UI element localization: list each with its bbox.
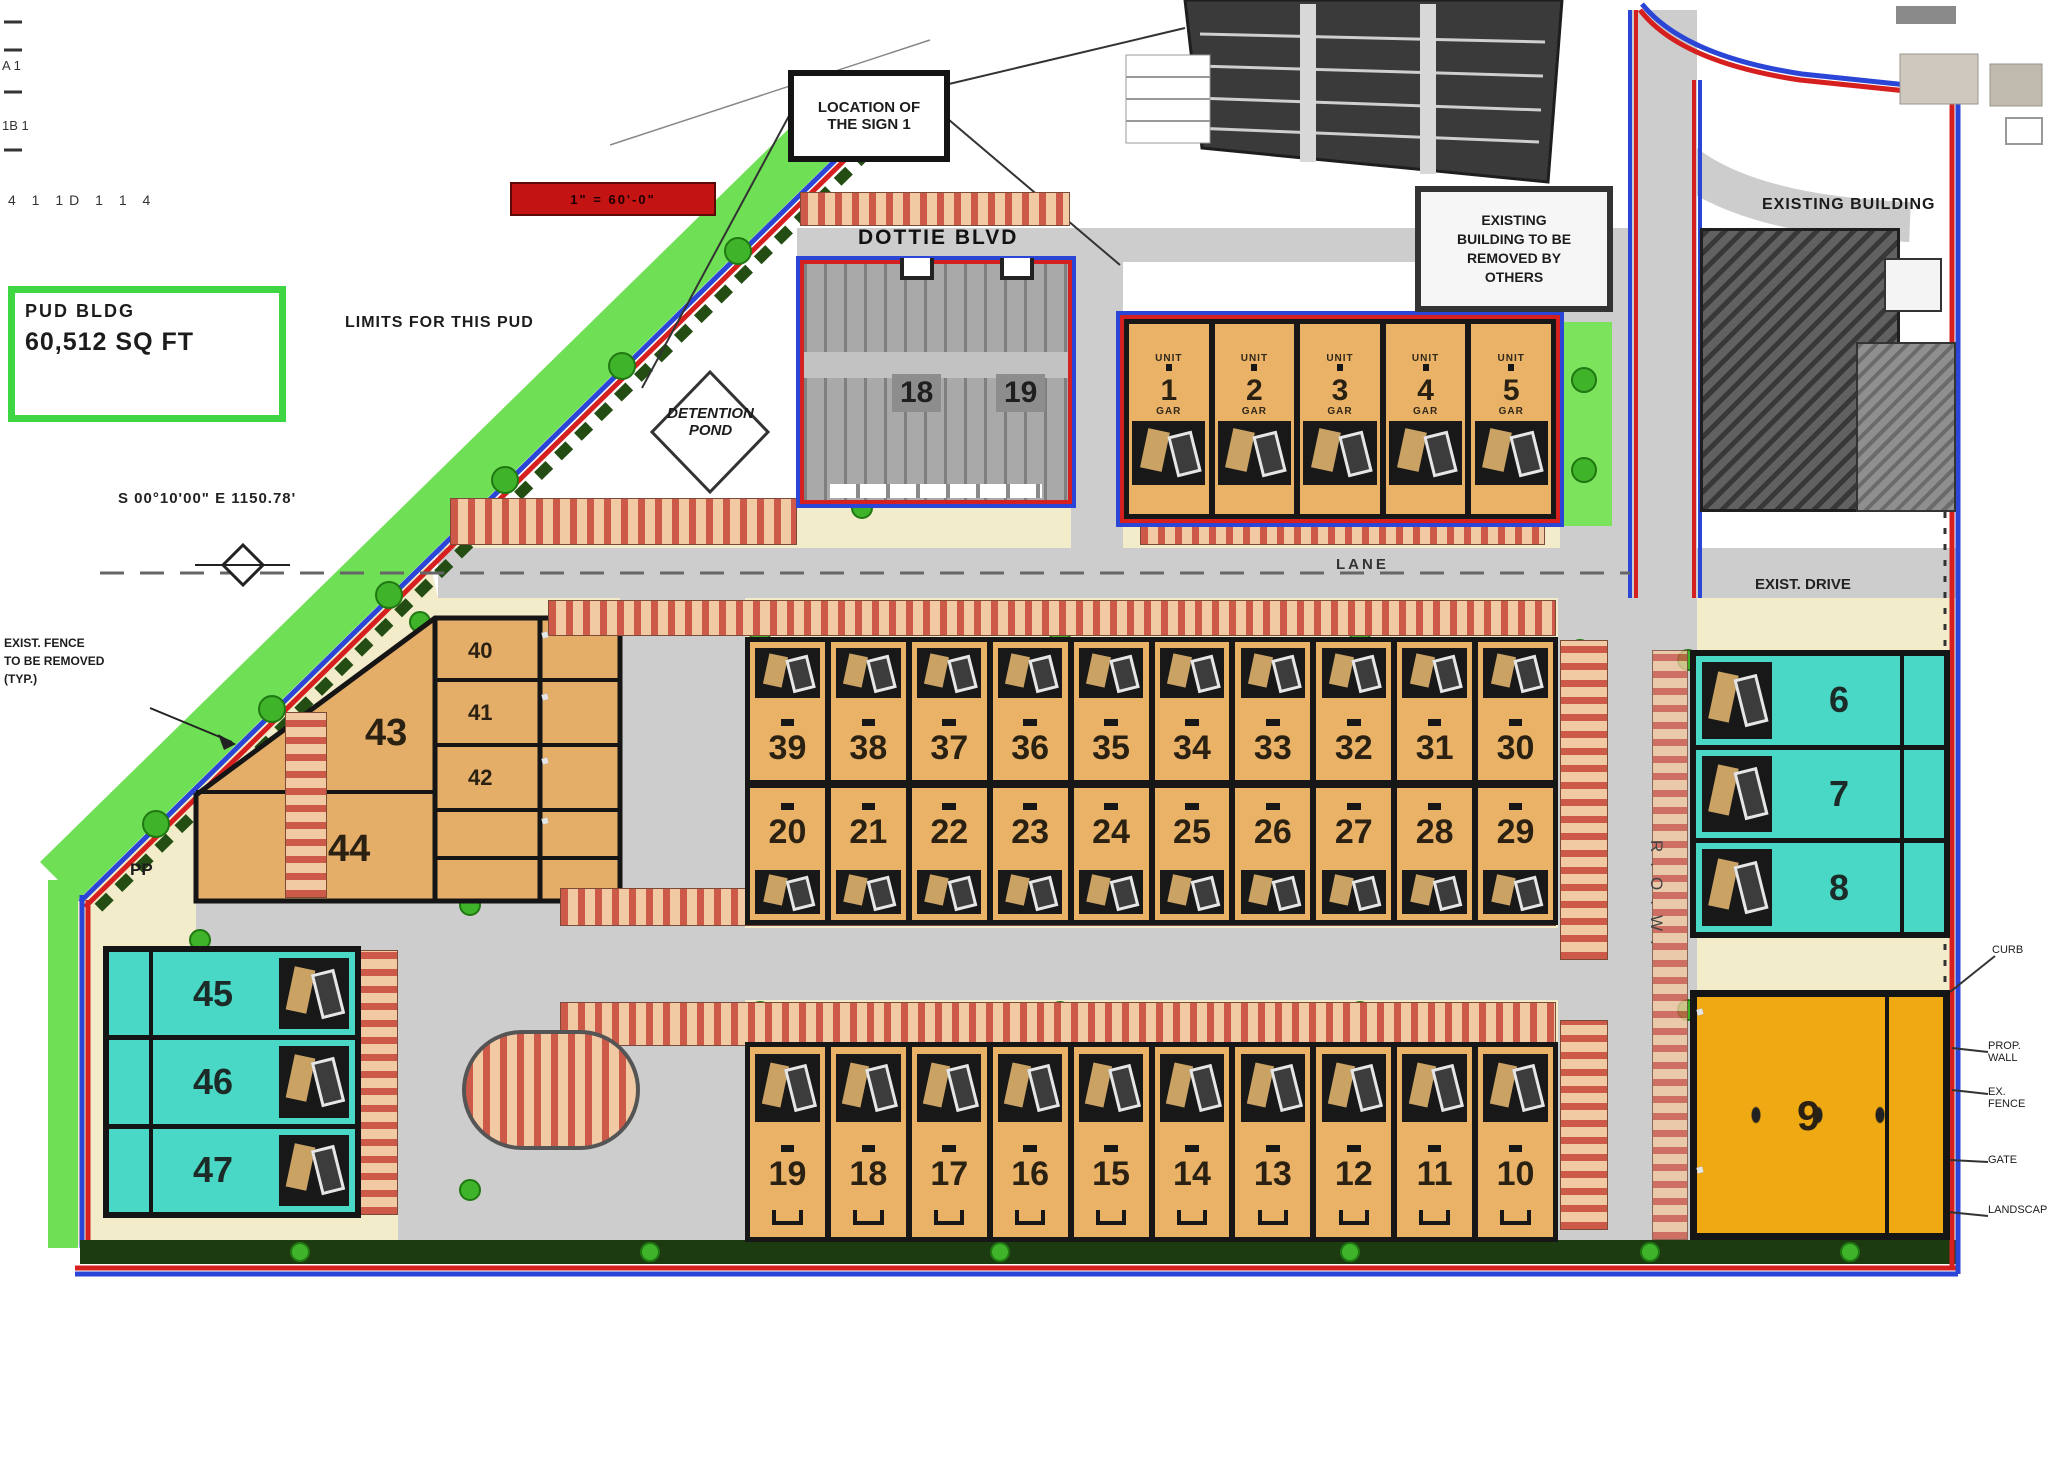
callout-curb: CURB [1992, 944, 2046, 956]
unit-cell: 26 [1235, 788, 1310, 864]
center-row-middle: 20 21 22 23 24 25 26 27 28 29 [750, 788, 1553, 864]
unit-cell: 14 [1155, 1129, 1230, 1207]
patio-cell [1316, 864, 1391, 920]
unit-cell: 33 [1235, 704, 1310, 780]
building-door-tabs [830, 484, 1041, 498]
center-row-upper: 39 38 37 36 35 34 33 32 31 30 [750, 704, 1553, 788]
scale-bar: 1" = 60'-0" [510, 182, 716, 216]
unit-number: 21 [849, 803, 887, 849]
unit-cell: 38 [831, 704, 906, 780]
unit-garage [1218, 421, 1291, 485]
unit-tag-top: UNIT [1498, 353, 1525, 364]
patio-glyph [836, 648, 900, 698]
unit-garage [1702, 756, 1772, 833]
unit-number: 23 [1011, 803, 1049, 849]
unit-garage [279, 1135, 349, 1206]
garage-cell [993, 1047, 1068, 1129]
patio-cell [1155, 864, 1230, 920]
unit-number: 24 [1092, 803, 1130, 849]
unit-garage [1702, 662, 1772, 739]
unit-number: 47 [153, 1129, 273, 1212]
patio-glyph [1322, 648, 1386, 698]
unit-tag-top: UNIT [1326, 353, 1353, 364]
parking-strip-east-upper [1560, 640, 1608, 960]
entry-stub [1900, 750, 1944, 839]
unit-number-43: 43 [365, 712, 407, 755]
garage-glyph [998, 1054, 1062, 1121]
callout-gate: GATE [1988, 1154, 2046, 1166]
parking-strip-left-vertical [360, 950, 398, 1215]
unit-cell: 32 [1316, 704, 1391, 780]
unit-number-40: 40 [468, 638, 492, 664]
street-label-lane: LANE [1336, 556, 1389, 573]
porch-cell [1235, 1207, 1310, 1237]
unit-cell: 29 [1478, 788, 1553, 864]
note-line: REMOVED BY [1467, 249, 1561, 268]
unit-number: 35 [1092, 719, 1130, 765]
garage-cell [1316, 1047, 1391, 1129]
garage-cell [750, 1047, 825, 1129]
patio-glyph [998, 648, 1062, 698]
unit-number: 20 [769, 803, 807, 849]
patio-cell [993, 864, 1068, 920]
unit-number: 27 [1335, 803, 1373, 849]
entry-stub [109, 1129, 153, 1212]
patio-cell [750, 864, 825, 920]
left-annotation-line: (TYP.) [4, 672, 37, 686]
corner-note-b: 1B 1 [2, 118, 29, 133]
south-garage-strip [750, 1047, 1553, 1129]
gray-building-18-19: 18 19 [800, 260, 1072, 504]
unit-garage [1475, 421, 1548, 485]
driveway-tab [900, 258, 934, 280]
pond-line2: POND [689, 422, 732, 439]
patio-glyph [1402, 870, 1466, 915]
garage-glyph [917, 1054, 981, 1121]
units-1-5-grid: UNIT 1 GAR UNIT 2 GAR UNIT 3 GAR UNIT 4 … [1129, 324, 1551, 514]
corner-note-a: A 1 [2, 58, 21, 73]
unit-number: 46 [153, 1040, 273, 1123]
patio-glyph [1402, 648, 1466, 698]
unit-tag-bottom: GAR [1156, 406, 1181, 417]
entry-stub [1900, 656, 1944, 745]
unit-number: 5 [1503, 364, 1520, 406]
unit-number: 39 [769, 719, 807, 765]
unit-cell: 12 [1316, 1129, 1391, 1207]
left-annotation-line: EXIST. FENCE [4, 636, 85, 650]
note-line: BUILDING TO BE [1457, 230, 1571, 249]
parking-strip-left-block [285, 712, 327, 898]
cyan-unit-row: 45 [109, 952, 355, 1040]
unit-number: 14 [1173, 1145, 1211, 1191]
sign-line1: LOCATION OF [818, 99, 920, 116]
left-annotation-line: TO BE REMOVED [4, 654, 104, 668]
unit-cell: 39 [750, 704, 825, 780]
south-row: 19 18 17 16 15 14 13 12 11 10 [750, 1129, 1553, 1207]
units-1-5-block: UNIT 1 GAR UNIT 2 GAR UNIT 3 GAR UNIT 4 … [1120, 315, 1560, 523]
patio-cell [1074, 642, 1149, 704]
porch-cell [1316, 1207, 1391, 1237]
patio-cell [1155, 642, 1230, 704]
unit-cell: 20 [750, 788, 825, 864]
unit-cell: 17 [912, 1129, 987, 1207]
note-line: OTHERS [1485, 268, 1543, 287]
unit-number: 2 [1246, 364, 1263, 406]
existing-building-annex [1856, 342, 1956, 512]
yellow-block-9: 9 [1690, 990, 1950, 1240]
porch-cell [1478, 1207, 1553, 1237]
parking-strip-dottie-frontage [800, 192, 1070, 226]
unit-number: 1 [1160, 364, 1177, 406]
patio-glyph [1241, 648, 1305, 698]
unit-cell: UNIT 5 GAR [1471, 324, 1551, 514]
sign-line2: THE SIGN 1 [827, 116, 910, 133]
unit-garage [1389, 421, 1462, 485]
sign-location-box: LOCATION OF THE SIGN 1 [788, 70, 950, 162]
patio-glyph [917, 870, 981, 915]
parking-strip-north [548, 600, 1556, 636]
unit-number-44: 44 [328, 828, 370, 871]
unit-tag-bottom: GAR [1242, 406, 1267, 417]
unit-number: 25 [1173, 803, 1211, 849]
patio-glyph [1483, 648, 1547, 698]
porch-cell [1155, 1207, 1230, 1237]
patio-glyph [755, 870, 819, 915]
unit-number-9: 9 [1797, 1092, 1820, 1140]
center-patio-strip-top [750, 642, 1553, 704]
unit-tag-top: UNIT [1241, 353, 1268, 364]
unit-cell: 25 [1155, 788, 1230, 864]
unit-cell: 15 [1074, 1129, 1149, 1207]
pond-line1: DETENTION [667, 405, 754, 422]
scale-bar-text: 1" = 60'-0" [570, 192, 655, 207]
ticks-row: 4 1 1D 1 1 4 [8, 192, 156, 208]
unit-cell: 13 [1235, 1129, 1310, 1207]
unit-cell: 37 [912, 704, 987, 780]
garage-glyph [1079, 1054, 1143, 1121]
gray-building-unit-18: 18 [892, 374, 941, 412]
patio-glyph [1241, 870, 1305, 915]
cyan-right-block: 6 7 8 [1690, 650, 1950, 938]
cyan-left-block: 45 46 47 [103, 946, 361, 1218]
porch-cell [912, 1207, 987, 1237]
parking-strip-east-lower [1560, 1020, 1608, 1230]
callout-landscape: LANDSCAPE [1988, 1204, 2046, 1216]
unit-cell: 35 [1074, 704, 1149, 780]
porch-cell [750, 1207, 825, 1237]
unit-garage [1303, 421, 1376, 485]
unit-number: 34 [1173, 719, 1211, 765]
patio-glyph [917, 648, 981, 698]
note-line: EXISTING [1481, 211, 1546, 230]
patio-cell [1235, 642, 1310, 704]
unit-cell: 22 [912, 788, 987, 864]
garage-glyph [1241, 1054, 1305, 1121]
patio-cell [912, 864, 987, 920]
existing-building-label: EXISTING BUILDING [1762, 196, 1935, 214]
pud-limits-note: LIMITS FOR THIS PUD [345, 314, 534, 332]
unit-number: 16 [1011, 1145, 1049, 1191]
unit-number: 30 [1497, 719, 1535, 765]
row-vertical-label: R.O.W. [1646, 840, 1666, 955]
garage-cell [1397, 1047, 1472, 1129]
unit-number: 37 [930, 719, 968, 765]
garage-glyph [836, 1054, 900, 1121]
driveway-tab [1000, 258, 1034, 280]
unit-tag-bottom: GAR [1499, 406, 1524, 417]
unit-tag-bottom: GAR [1327, 406, 1352, 417]
garage-cell [912, 1047, 987, 1129]
patio-cell [1397, 864, 1472, 920]
unit-cell: 11 [1397, 1129, 1472, 1207]
patio-glyph [1160, 870, 1224, 915]
unit-number: 17 [930, 1145, 968, 1191]
garage-glyph [755, 1054, 819, 1121]
unit-cell: 19 [750, 1129, 825, 1207]
unit-number-42: 42 [468, 765, 492, 791]
unit-number: 15 [1092, 1145, 1130, 1191]
unit-cell: 27 [1316, 788, 1391, 864]
unit-cell: 24 [1074, 788, 1149, 864]
unit-number: 19 [769, 1145, 807, 1191]
unit-cell: UNIT 1 GAR [1129, 324, 1209, 514]
unit-number: 29 [1497, 803, 1535, 849]
garage-glyph [1322, 1054, 1386, 1121]
garage-cell [831, 1047, 906, 1129]
parking-strip-mid-lower [560, 1002, 1556, 1046]
patio-glyph [755, 648, 819, 698]
patio-cell [1316, 642, 1391, 704]
patio-cell [750, 642, 825, 704]
entry-stub [109, 1040, 153, 1123]
unit-number: 11 [1417, 1145, 1453, 1191]
patio-cell [1478, 642, 1553, 704]
patio-cell [831, 642, 906, 704]
unit-tag-bottom: GAR [1413, 406, 1438, 417]
gray-building-unit-19: 19 [996, 374, 1045, 412]
south-porch-strip [750, 1207, 1553, 1237]
unit-cell: 36 [993, 704, 1068, 780]
pond-label: DETENTION POND [648, 405, 773, 439]
unit-number: 45 [153, 952, 273, 1035]
garage-glyph [1402, 1054, 1466, 1121]
unit-tag-top: UNIT [1412, 353, 1439, 364]
porch-cell [1074, 1207, 1149, 1237]
unit-number: 3 [1332, 364, 1349, 406]
interior-wall [1885, 997, 1889, 1233]
patio-glyph [1483, 870, 1547, 915]
unit-cell: 34 [1155, 704, 1230, 780]
patio-cell [912, 642, 987, 704]
patio-cell [993, 642, 1068, 704]
porch-cell [1397, 1207, 1472, 1237]
callout-wall: PROP. WALL [1988, 1040, 2046, 1064]
garage-cell [1478, 1047, 1553, 1129]
legend-line2: 60,512 SQ FT [25, 328, 269, 357]
unit-number-41: 41 [468, 700, 492, 726]
parking-strip-west-of-bldg-18-19 [450, 498, 797, 545]
patio-glyph [1079, 648, 1143, 698]
unit-number: 6 [1778, 656, 1900, 745]
garage-glyph [1483, 1054, 1547, 1121]
unit-number: 12 [1335, 1145, 1373, 1191]
removal-note-box: EXISTING BUILDING TO BE REMOVED BY OTHER… [1415, 186, 1613, 312]
unit-cell: UNIT 2 GAR [1215, 324, 1295, 514]
cyan-unit-row: 7 [1696, 750, 1944, 844]
south-units-block: 19 18 17 16 15 14 13 12 11 10 [745, 1042, 1558, 1242]
unit-cell: 21 [831, 788, 906, 864]
left-annotation: EXIST. FENCE TO BE REMOVED (TYP.) [4, 634, 229, 688]
unit-number: 36 [1011, 719, 1049, 765]
unit-number: 32 [1335, 719, 1373, 765]
unit-garage [279, 958, 349, 1029]
garage-cell [1074, 1047, 1149, 1129]
unit-number: 33 [1254, 719, 1292, 765]
unit-number: 28 [1416, 803, 1454, 849]
garage-cell [1155, 1047, 1230, 1129]
unit-cell: 18 [831, 1129, 906, 1207]
patio-glyph [1079, 870, 1143, 915]
entry-stub [109, 952, 153, 1035]
patio-glyph [1322, 870, 1386, 915]
unit-number: 4 [1417, 364, 1434, 406]
porch-cell [993, 1207, 1068, 1237]
patio-glyph [1160, 648, 1224, 698]
parking-island-oval [462, 1030, 640, 1150]
street-label-dottie: DOTTIE BLVD [858, 226, 1018, 250]
patio-cell [831, 864, 906, 920]
patio-glyph [998, 870, 1062, 915]
legend-box: PUD BLDG 60,512 SQ FT [8, 286, 286, 422]
unit-cell: 28 [1397, 788, 1472, 864]
unit-cell: UNIT 4 GAR [1386, 324, 1466, 514]
unit-number: 13 [1254, 1145, 1292, 1191]
unit-number: 7 [1778, 750, 1900, 839]
entry-stub [1900, 843, 1944, 932]
unit-tag-top: UNIT [1155, 353, 1182, 364]
center-units-block: 39 38 37 36 35 34 33 32 31 30 20 [745, 637, 1558, 925]
unit-cell: 16 [993, 1129, 1068, 1207]
cyan-unit-row: 6 [1696, 656, 1944, 750]
unit-garage [1702, 849, 1772, 926]
unit-number: 10 [1497, 1145, 1535, 1191]
cyan-unit-row: 47 [109, 1129, 355, 1212]
patio-cell [1074, 864, 1149, 920]
unit-cell: 31 [1397, 704, 1472, 780]
patio-cell [1397, 642, 1472, 704]
cyan-unit-row: 46 [109, 1040, 355, 1128]
unit-cell: 30 [1478, 704, 1553, 780]
unit-number: 8 [1778, 843, 1900, 932]
unit-number: 38 [849, 719, 887, 765]
unit-number: 31 [1416, 719, 1454, 765]
patio-glyph [836, 870, 900, 915]
garage-cell [1235, 1047, 1310, 1129]
bearing-label: S 00°10'00" E 1150.78' [118, 490, 296, 507]
unit-cell: 23 [993, 788, 1068, 864]
cyan-unit-row: 8 [1696, 843, 1944, 932]
patio-cell [1235, 864, 1310, 920]
street-label-exist-drive: EXIST. DRIVE [1755, 576, 1851, 593]
unit-cell: UNIT 3 GAR [1300, 324, 1380, 514]
unit-garage [279, 1046, 349, 1117]
pp-label: PP [130, 860, 153, 880]
unit-garage [1132, 421, 1205, 485]
unit-number: 26 [1254, 803, 1292, 849]
callout-fence: EX. FENCE [1988, 1086, 2046, 1110]
unit-cell: 10 [1478, 1129, 1553, 1207]
unit-number: 18 [849, 1145, 887, 1191]
garage-glyph [1160, 1054, 1224, 1121]
existing-building-notch [1884, 258, 1942, 312]
center-patio-strip-bottom [750, 864, 1553, 920]
patio-cell [1478, 864, 1553, 920]
unit-number: 22 [930, 803, 968, 849]
legend-line1: PUD BLDG [25, 301, 269, 322]
site-plan: 18 19 UNIT 1 GAR UNIT 2 GAR UNIT 3 GAR [0, 0, 2048, 1476]
porch-cell [831, 1207, 906, 1237]
